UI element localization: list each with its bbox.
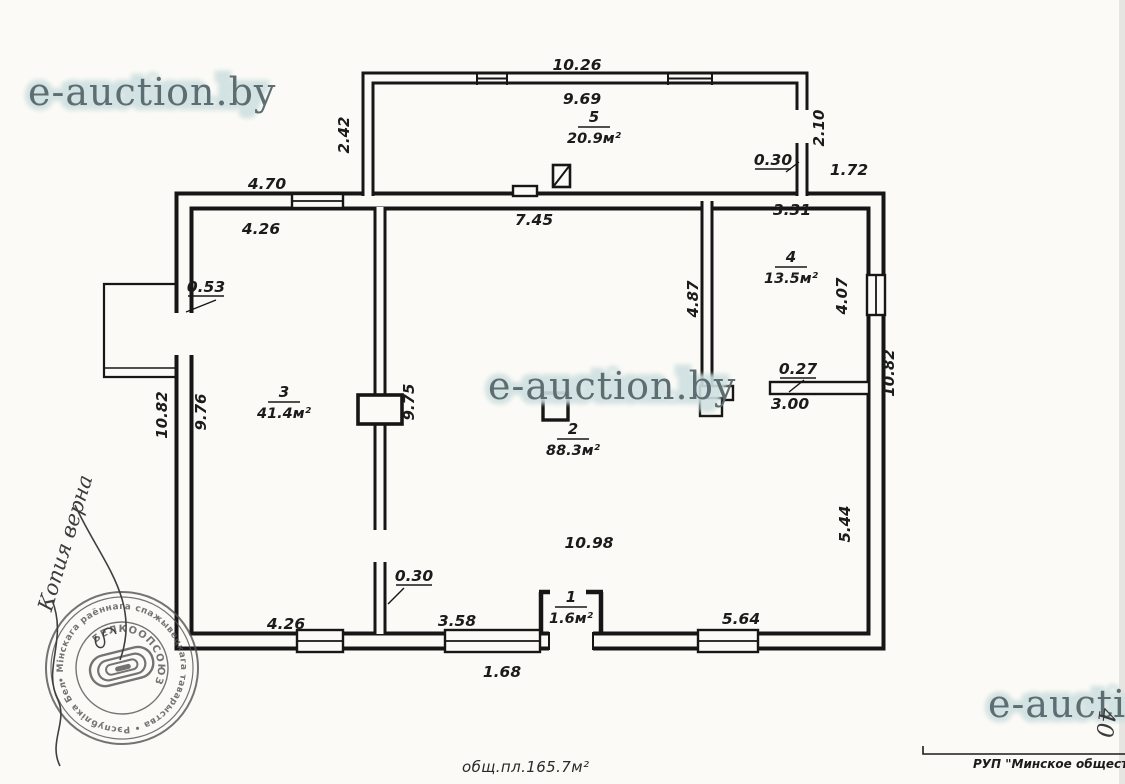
watermark-top-left: e-auction.by — [28, 70, 276, 114]
room4-number: 4 — [785, 248, 796, 266]
wall-step — [513, 186, 537, 196]
shelf-partition — [770, 382, 869, 394]
dim-left-stub: 0.53 — [187, 278, 225, 296]
room3-number: 3 — [279, 383, 289, 401]
dim-top-right: 1.72 — [830, 161, 868, 179]
dim-room2-top: 7.45 — [515, 211, 553, 229]
dim-top-left-inner: 4.26 — [241, 220, 280, 238]
dim-shelf-thickness: 0.27 — [779, 360, 817, 378]
dim-room4-top: 3.31 — [773, 201, 811, 219]
dim-shelf-length: 3.00 — [771, 395, 809, 413]
scanned-floor-plan-page: 10.26 9.69 2.42 2.10 0.30 1.72 4.70 4.26… — [0, 0, 1125, 784]
dim-room2-bottom: 10.98 — [564, 534, 613, 552]
dim-top-left-outer: 4.70 — [247, 175, 286, 193]
room4-area: 13.5м² — [764, 271, 819, 287]
room1-number: 1 — [566, 588, 576, 606]
dim-right-inner: 5.44 — [836, 505, 854, 542]
room5-area: 20.9м² — [567, 131, 622, 147]
room3-area: 41.4м² — [256, 406, 312, 422]
dim-veranda-right: 2.10 — [810, 109, 828, 146]
dim-bottom-left: 4.26 — [266, 615, 305, 633]
dim-veranda-outer: 10.26 — [552, 56, 601, 74]
dim-partition-room4: 4.87 — [684, 280, 702, 319]
total-area-label: общ.пл.165.7м² — [462, 758, 589, 776]
org-label: РУП "Минское общество — [973, 757, 1125, 771]
room2-number: 2 — [568, 420, 578, 438]
dim-chimney: 0.30 — [754, 151, 792, 169]
watermark-center: e-auction.by — [488, 364, 736, 408]
dim-bottom-window: 1.68 — [483, 663, 521, 681]
dim-bottom-right: 5.64 — [722, 610, 760, 628]
dim-bottom-mid: 3.58 — [438, 612, 476, 630]
dim-window-right: 4.07 — [833, 277, 851, 316]
dim-veranda-inner: 9.69 — [563, 90, 601, 108]
dim-right-outer: 10.82 — [880, 349, 898, 396]
dim-bottom-stub: 0.30 — [395, 567, 433, 585]
room2-area: 88.3м² — [546, 443, 601, 459]
stove-block — [358, 395, 402, 424]
scan-edge — [1119, 0, 1125, 784]
dim-left-inner: 9.76 — [192, 393, 210, 430]
entry-door-gap — [549, 628, 593, 654]
dim-left-outer: 10.82 — [153, 391, 171, 438]
dim-veranda-left: 2.42 — [335, 116, 353, 153]
sheet-number: 40 — [1090, 706, 1119, 739]
room5-number: 5 — [589, 108, 599, 126]
floor-plan-canvas: 10.26 9.69 2.42 2.10 0.30 1.72 4.70 4.26… — [0, 0, 1125, 784]
room1-area: 1.6м² — [549, 611, 594, 627]
dim-partition-a: 9.75 — [400, 383, 418, 420]
